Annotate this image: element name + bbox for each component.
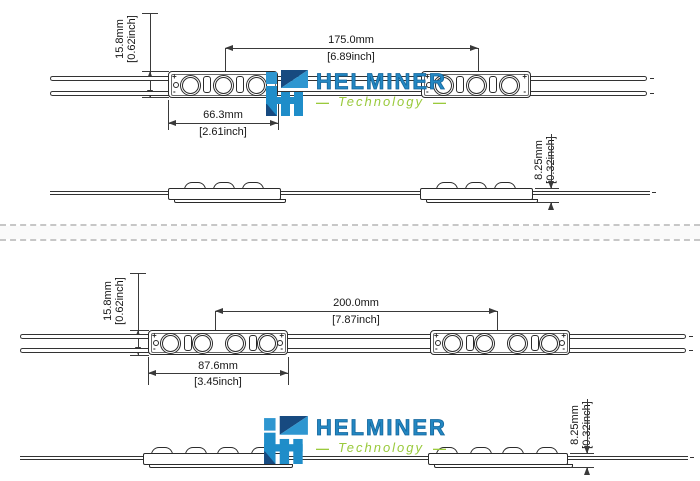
dim-line [551,134,552,188]
dim-thickness-mm: 8.25mm [569,401,581,449]
dim-pitch-mm: 175.0mm [328,34,374,46]
polarity-plus-label: + [279,332,284,340]
wire [529,76,647,81]
helminer-logo-mark-icon [264,416,309,464]
wire-tip [652,192,656,193]
dim-arrow [584,446,590,454]
dim-line [168,123,278,124]
led-lens [213,75,234,96]
led-lens [160,333,181,354]
extension-line [288,357,289,385]
dim-tick [142,13,158,14]
dim-module-width-mm: 66.3mm [203,109,243,121]
polarity-minus-label: - [280,345,283,353]
dim-arrow [470,45,478,51]
dim-thickness-mm: 8.25mm [533,136,545,184]
module-divider [203,76,211,93]
dim-module-width-mm: 87.6mm [198,360,238,372]
led-lens [499,75,520,96]
extension-line [570,453,594,454]
wire-tip [690,457,694,458]
dim-pitch-inch: [7.87inch] [332,314,380,326]
dim-arrow [270,120,278,126]
dim-module-height: 15.8mm [0.62inch] [102,277,126,325]
polarity-plus-label: + [522,73,527,81]
helminer-logo: HELMINER — Technology — [264,416,447,464]
brand-tagline: Technology [338,95,424,109]
extension-line [570,467,594,468]
dim-arrow [548,181,554,189]
dim-line [587,399,588,453]
dim-arrow [215,308,223,314]
screw-hole [173,82,179,88]
module-divider [456,76,464,93]
wire [568,348,686,353]
polarity-plus-label: + [152,332,157,340]
led-lens [474,333,495,354]
dim-line [148,373,288,374]
dim-thickness: 8.25mm [0.32inch] [569,401,593,449]
led-lens [246,75,267,96]
dim-module-width-inch: [3.45inch] [194,376,242,388]
wire-tip [689,336,693,337]
polarity-plus-label: + [561,332,566,340]
dim-pitch-mm: 200.0mm [333,297,379,309]
wire-side [50,191,650,195]
led-module-spec-drawing: 15.8mm [0.62inch] 175.0mm [6.89inch] + -… [0,0,700,481]
dim-arrow [548,202,554,210]
dim-thickness: 8.25mm [0.32inch] [533,136,557,184]
dim-line [138,273,139,355]
extension-line [535,202,559,203]
led-lens [539,333,560,354]
module-divider [184,335,192,351]
wire [286,348,432,353]
led-lens [466,75,487,96]
tagline-dash: — [433,96,446,109]
dim-arrow [584,467,590,475]
dim-arrow [489,308,497,314]
section-divider-dashed-line [0,224,700,226]
dim-module-width-inch: [2.61inch] [199,126,247,138]
led-lens [257,333,278,354]
module-base-tape [149,464,293,468]
dim-line [215,311,497,312]
polarity-minus-label: - [173,88,176,96]
wire [20,348,150,353]
module-divider [466,335,474,351]
tagline-dash: — [316,442,329,455]
module-divider [249,335,257,351]
wire-tip [689,350,693,351]
polarity-minus-label: - [435,345,438,353]
polarity-minus-label: - [523,88,526,96]
wire [50,91,170,96]
wire [20,334,150,339]
extension-line [535,188,559,189]
brand-tagline: Technology [338,441,424,455]
section-divider-dashed-line [0,239,700,241]
screw-hole [153,340,159,346]
wire [529,91,647,96]
helminer-logo-mark-icon [266,70,309,116]
screw-hole [435,340,441,346]
dim-height-inch: [0.62inch] [126,15,138,63]
extension-line [130,355,149,356]
dim-pitch-inch: [6.89inch] [327,51,375,63]
dim-arrow [280,370,288,376]
dim-line [225,48,478,49]
polarity-minus-label: - [562,345,565,353]
led-module-front: + - + - [148,330,288,355]
module-base-tape [174,199,286,203]
polarity-plus-label: + [172,73,177,81]
wire [568,334,686,339]
dim-arrow [225,45,233,51]
led-lens [507,333,528,354]
led-module-front: + - + - [168,71,278,98]
wire [286,334,432,339]
tagline-dash: — [316,96,329,109]
polarity-plus-label: + [434,332,439,340]
dim-height-mm: 15.8mm [102,277,114,325]
module-divider [531,335,539,351]
dim-height-mm: 15.8mm [114,15,126,63]
module-divider [236,76,244,93]
module-base-tape [426,199,538,203]
led-lens [225,333,246,354]
polarity-minus-label: - [153,345,156,353]
brand-name: HELMINER [316,70,447,94]
dim-arrow [168,120,176,126]
wire-tip [650,78,654,79]
dim-tick [130,273,146,274]
led-lens [442,333,463,354]
wire [50,76,170,81]
helminer-logo: HELMINER — Technology — [266,70,447,116]
led-lens [180,75,201,96]
dim-module-height: 15.8mm [0.62inch] [114,15,138,63]
dim-arrow [148,370,156,376]
led-module-front: + - + - [430,330,570,355]
section-divider-band [0,226,700,239]
wire-tip [650,93,654,94]
module-base-tape [434,464,573,468]
led-lens [192,333,213,354]
brand-name: HELMINER [316,416,447,440]
dim-height-inch: [0.62inch] [114,277,126,325]
module-divider [489,76,497,93]
tagline-dash: — [433,442,446,455]
dim-line [150,13,151,98]
